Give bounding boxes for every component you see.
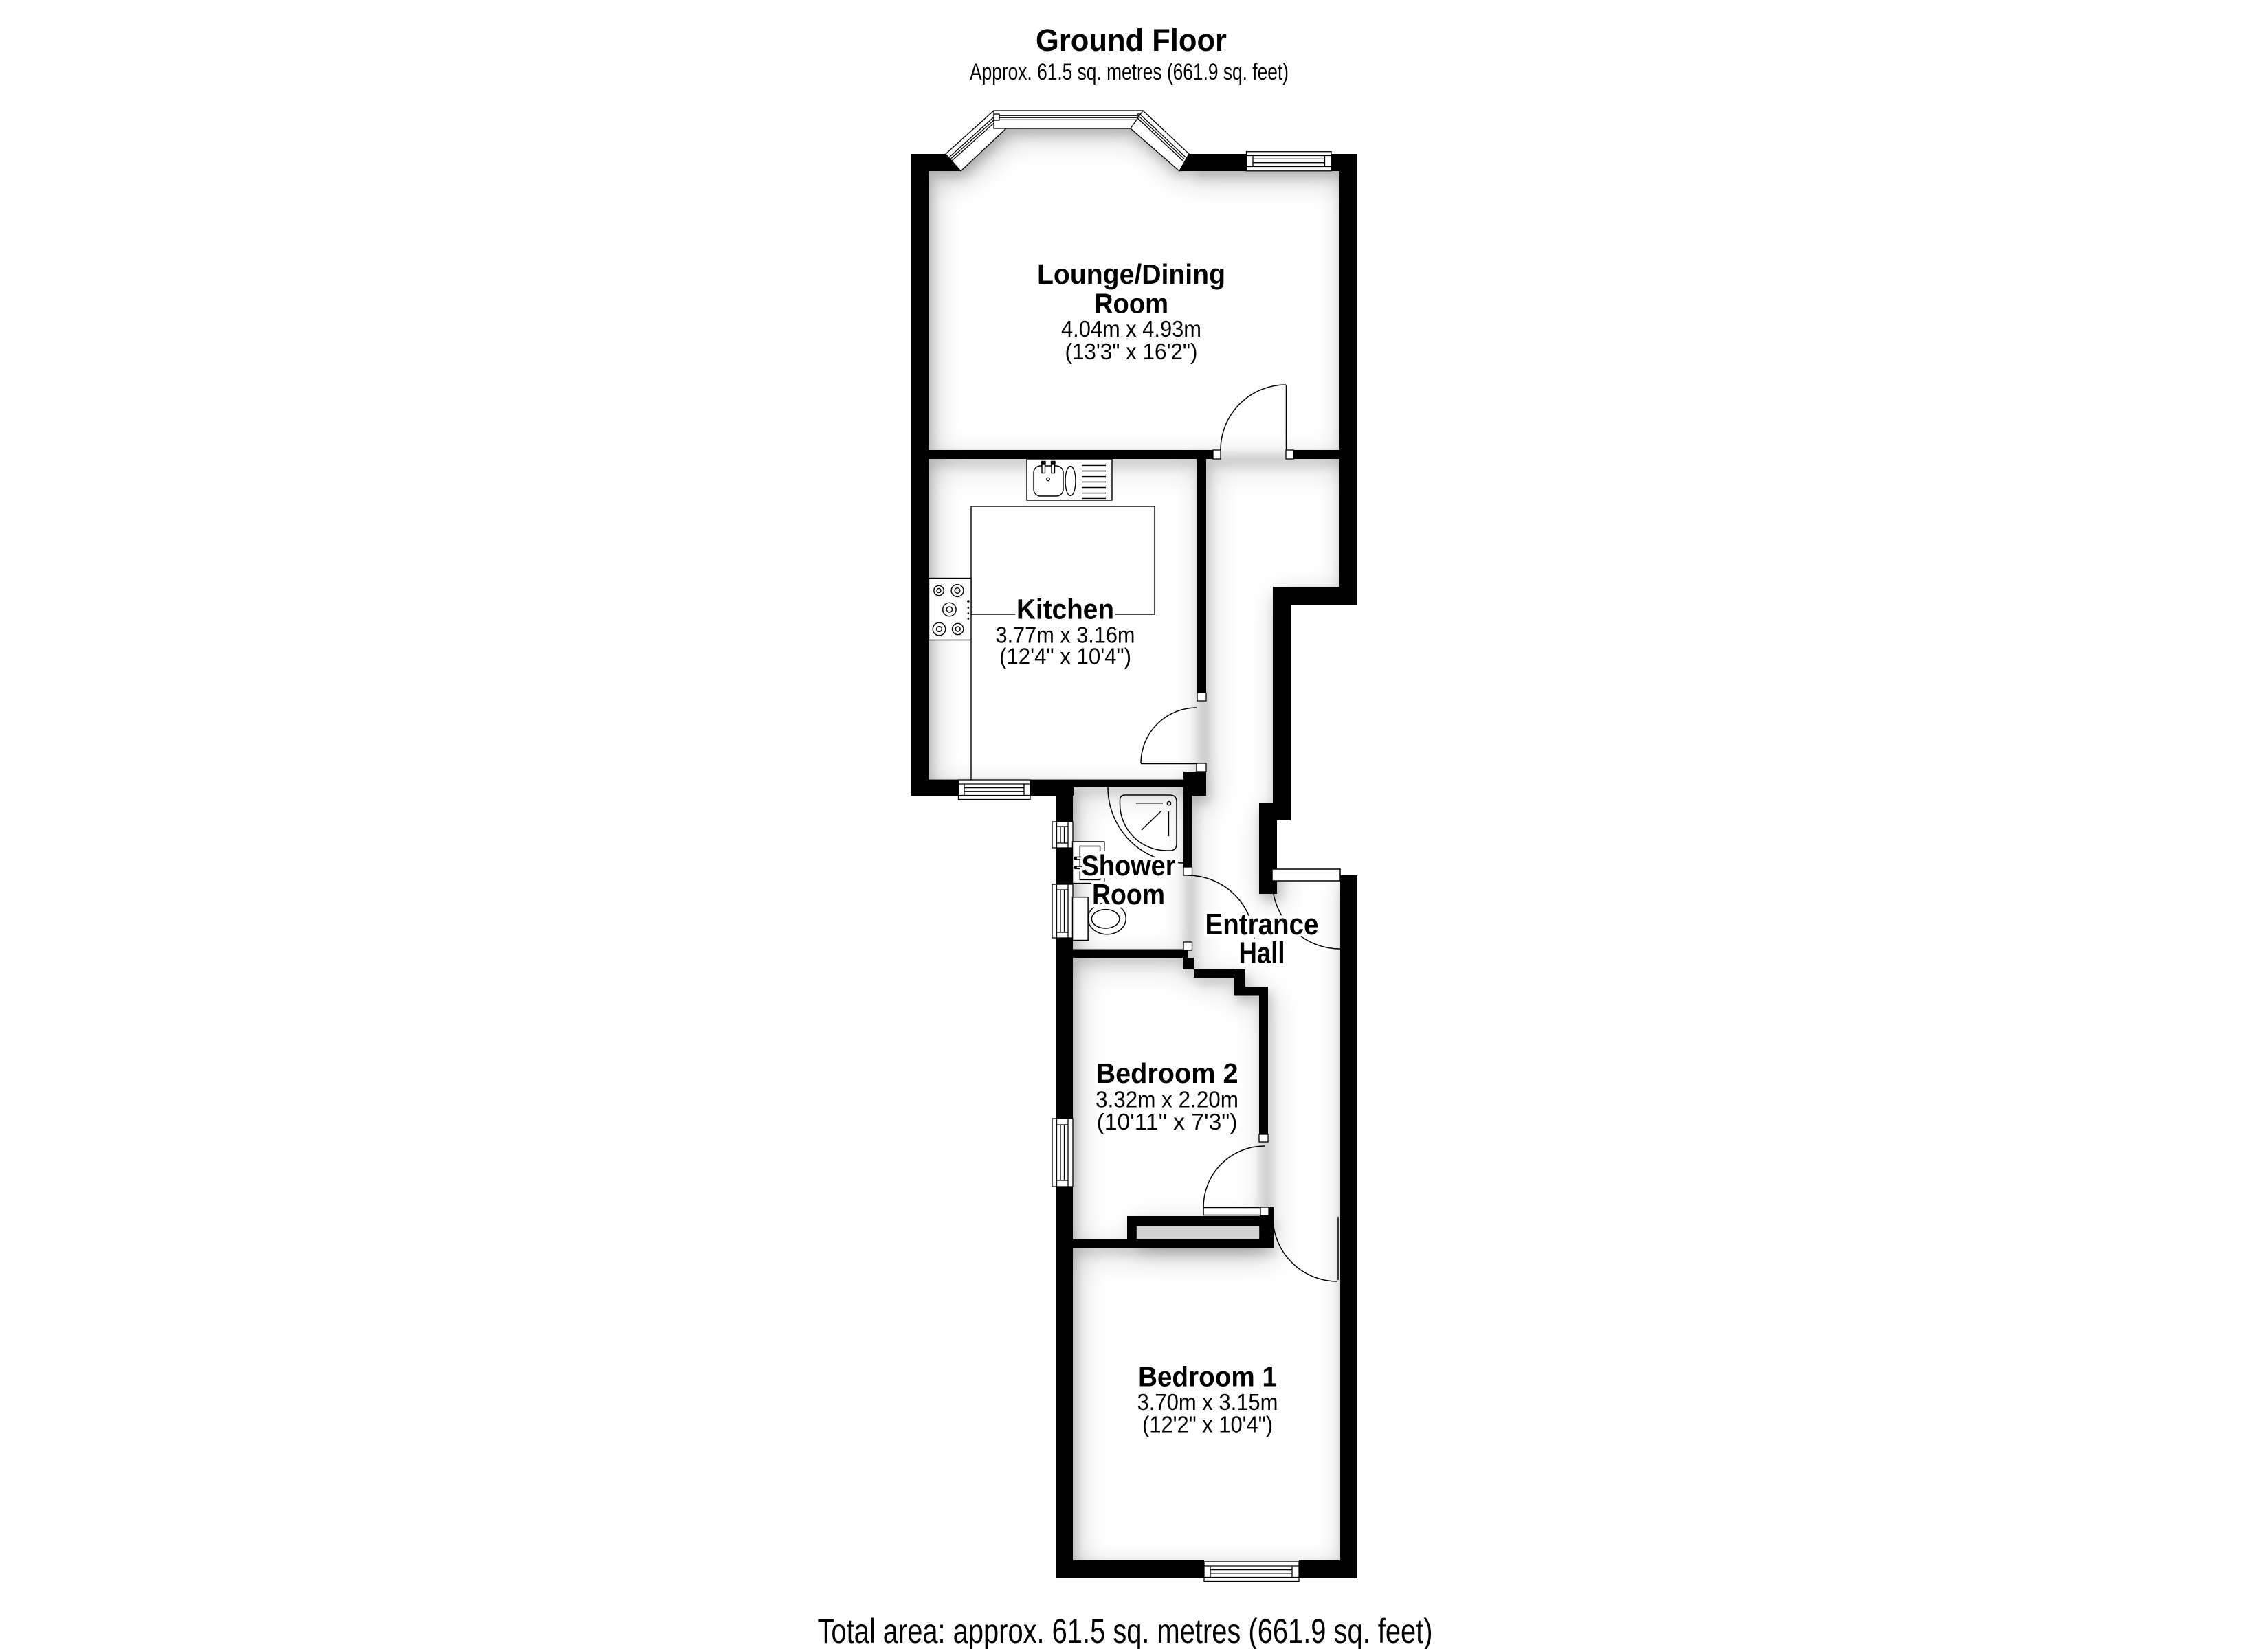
svg-text:(12'2" x 10'4"): (12'2" x 10'4") xyxy=(1142,1412,1273,1437)
svg-text:Bedroom 2: Bedroom 2 xyxy=(1096,1057,1238,1089)
svg-text:Room: Room xyxy=(1092,878,1165,910)
svg-text:4.04m x 4.93m: 4.04m x 4.93m xyxy=(1061,316,1201,341)
svg-text:(10'11" x 7'3"): (10'11" x 7'3") xyxy=(1097,1109,1238,1134)
svg-text:Bedroom 1: Bedroom 1 xyxy=(1138,1361,1277,1393)
svg-text:Total area: approx. 61.5 sq. m: Total area: approx. 61.5 sq. metres (661… xyxy=(818,1612,1433,1649)
svg-text:Approx. 61.5 sq. metres (661.9: Approx. 61.5 sq. metres (661.9 sq. feet) xyxy=(970,59,1289,85)
svg-text:3.70m x 3.15m: 3.70m x 3.15m xyxy=(1137,1389,1278,1415)
svg-text:(12'4" x 10'4"): (12'4" x 10'4") xyxy=(999,644,1131,669)
svg-text:Shower: Shower xyxy=(1082,849,1176,882)
svg-text:Kitchen: Kitchen xyxy=(1016,594,1114,625)
svg-text:(13'3" x 16'2"): (13'3" x 16'2") xyxy=(1065,339,1198,364)
svg-text:Hall: Hall xyxy=(1239,936,1285,970)
svg-text:Room: Room xyxy=(1094,288,1168,319)
svg-text:Lounge/Dining: Lounge/Dining xyxy=(1037,258,1225,290)
svg-text:Ground Floor: Ground Floor xyxy=(1036,23,1227,58)
